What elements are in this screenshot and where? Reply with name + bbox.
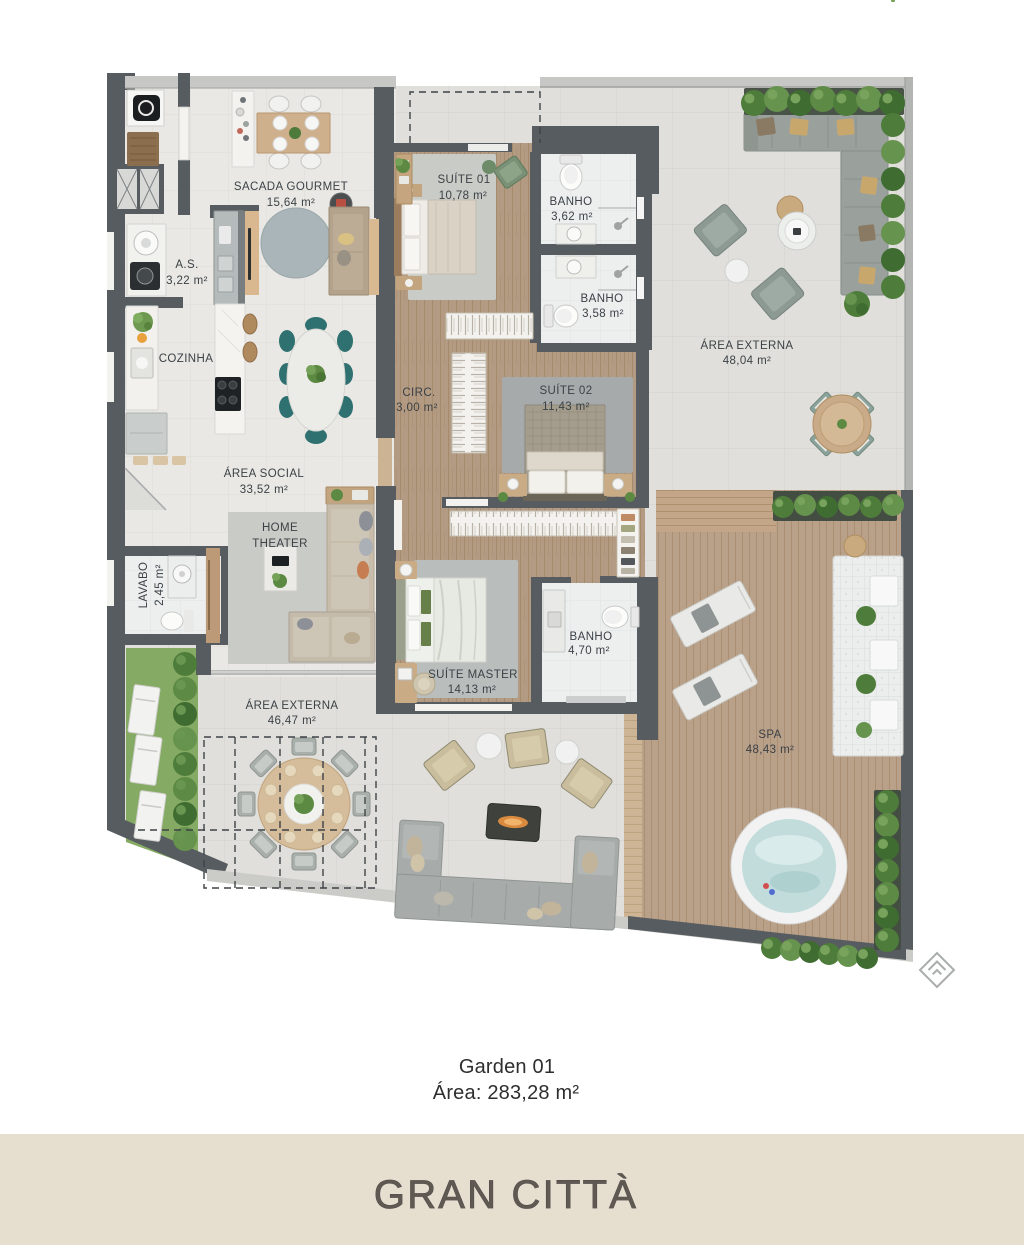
svg-text:3,00 m²: 3,00 m² <box>396 402 438 414</box>
svg-text:3,62 m²: 3,62 m² <box>551 211 593 223</box>
svg-text:BANHO: BANHO <box>550 196 593 208</box>
svg-text:33,52 m²: 33,52 m² <box>240 484 289 496</box>
svg-text:ÁREA EXTERNA: ÁREA EXTERNA <box>701 339 794 352</box>
svg-text:BANHO: BANHO <box>581 293 624 305</box>
svg-text:46,47 m²: 46,47 m² <box>268 715 317 727</box>
svg-text:48,04 m²: 48,04 m² <box>723 355 772 367</box>
svg-text:11,43 m²: 11,43 m² <box>542 401 590 413</box>
svg-text:SUÍTE 01: SUÍTE 01 <box>437 173 490 186</box>
svg-text:Garden 01: Garden 01 <box>459 1056 555 1078</box>
svg-text:10,78 m²: 10,78 m² <box>439 190 488 202</box>
svg-text:HOME: HOME <box>262 522 298 534</box>
svg-text:ÁREA EXTERNA: ÁREA EXTERNA <box>246 699 339 712</box>
svg-text:3,58 m²: 3,58 m² <box>582 308 624 320</box>
svg-text:COZINHA: COZINHA <box>159 353 214 365</box>
svg-text:3,22 m²: 3,22 m² <box>166 275 208 287</box>
svg-text:THEATER: THEATER <box>252 538 308 550</box>
svg-text:SPA: SPA <box>758 729 781 741</box>
svg-text:ÁREA SOCIAL: ÁREA SOCIAL <box>224 467 305 480</box>
svg-text:SUÍTE MASTER: SUÍTE MASTER <box>428 668 518 681</box>
svg-text:SUÍTE 02: SUÍTE 02 <box>539 384 592 397</box>
svg-text:GRAN CITTÀ: GRAN CITTÀ <box>374 1172 638 1217</box>
svg-text:4,70 m²: 4,70 m² <box>568 645 610 657</box>
svg-text:CIRC.: CIRC. <box>402 387 435 399</box>
svg-text:BANHO: BANHO <box>570 631 613 643</box>
svg-text:14,13 m²: 14,13 m² <box>448 684 497 696</box>
svg-text:LAVABO: LAVABO <box>138 562 150 609</box>
svg-text:15,64 m²: 15,64 m² <box>267 197 316 209</box>
svg-text:48,43 m²: 48,43 m² <box>746 744 795 756</box>
svg-text:Área: 283,28 m²: Área: 283,28 m² <box>433 1081 580 1104</box>
svg-text:A.S.: A.S. <box>175 259 198 271</box>
svg-text:2,45 m²: 2,45 m² <box>154 564 166 606</box>
svg-text:SACADA GOURMET: SACADA GOURMET <box>234 181 348 193</box>
